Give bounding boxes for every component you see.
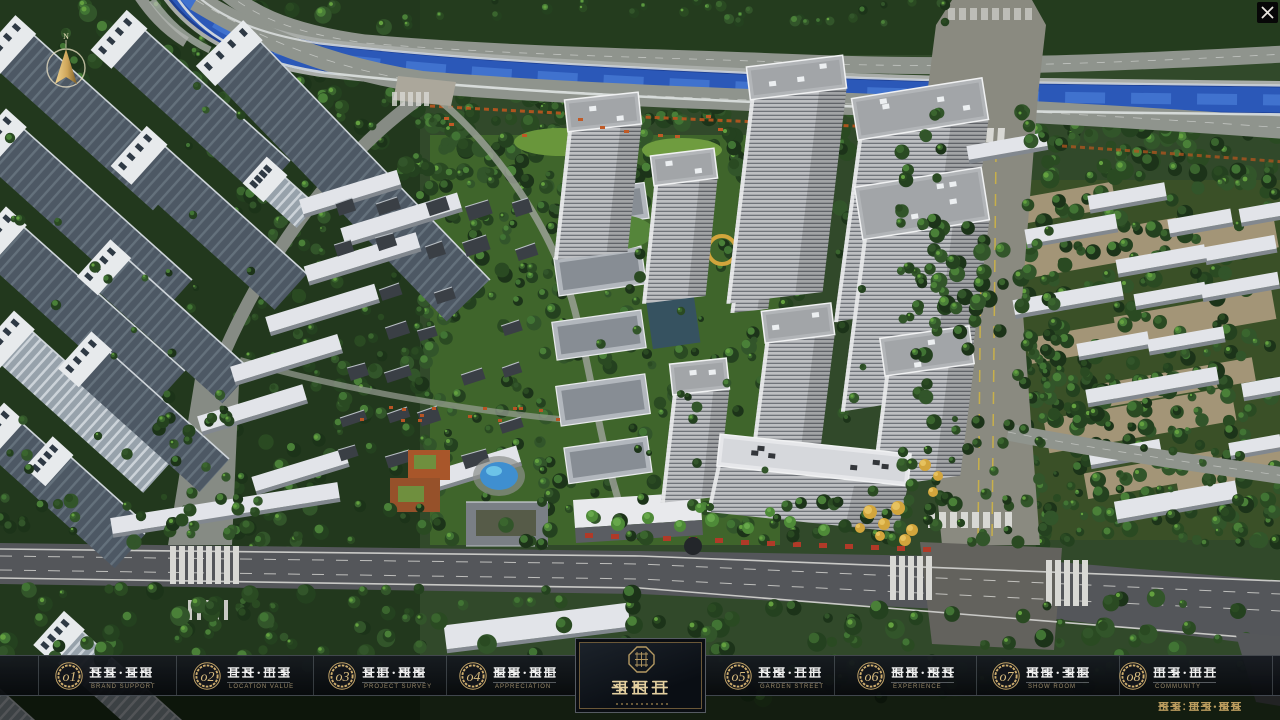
svg-text:o5: o5 (732, 670, 746, 685)
svg-text:o2: o2 (201, 670, 215, 685)
svg-text:o7: o7 (1000, 670, 1015, 685)
svg-text:o3: o3 (336, 670, 350, 685)
svg-text:o6: o6 (865, 670, 879, 685)
svg-text:N: N (63, 32, 69, 41)
svg-text:o4: o4 (467, 670, 481, 685)
svg-text:o1: o1 (63, 670, 77, 685)
svg-text:o8: o8 (1127, 670, 1141, 685)
